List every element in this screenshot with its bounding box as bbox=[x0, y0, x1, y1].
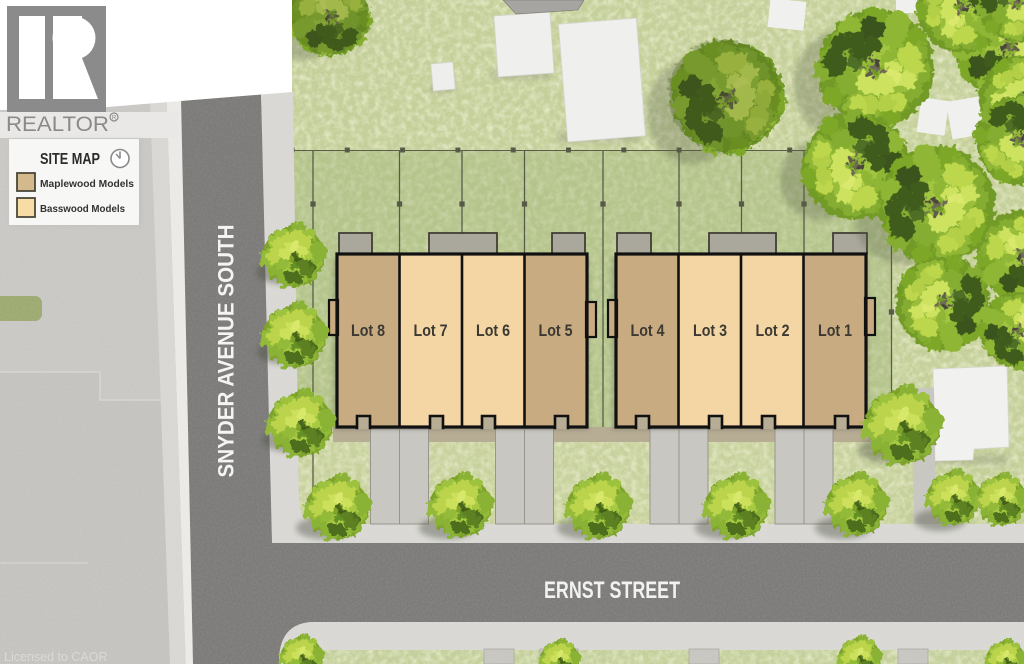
svg-text:Lot 6: Lot 6 bbox=[476, 322, 510, 340]
svg-text:SITE MAP: SITE MAP bbox=[40, 151, 100, 168]
svg-text:Licensed to CAOR: Licensed to CAOR bbox=[4, 650, 108, 664]
svg-text:Basswood Models: Basswood Models bbox=[40, 203, 125, 215]
svg-text:REALTOR: REALTOR bbox=[6, 112, 109, 136]
svg-text:Lot 7: Lot 7 bbox=[414, 322, 448, 340]
svg-text:Lot 8: Lot 8 bbox=[351, 322, 385, 340]
svg-text:Lot 3: Lot 3 bbox=[693, 322, 727, 340]
svg-text:Lot 4: Lot 4 bbox=[631, 322, 666, 340]
svg-text:Maplewood Models: Maplewood Models bbox=[40, 178, 134, 190]
svg-text:Lot 5: Lot 5 bbox=[539, 322, 573, 340]
svg-text:R: R bbox=[112, 116, 117, 122]
svg-text:Lot 2: Lot 2 bbox=[756, 322, 790, 340]
svg-text:Lot 1: Lot 1 bbox=[818, 322, 852, 340]
